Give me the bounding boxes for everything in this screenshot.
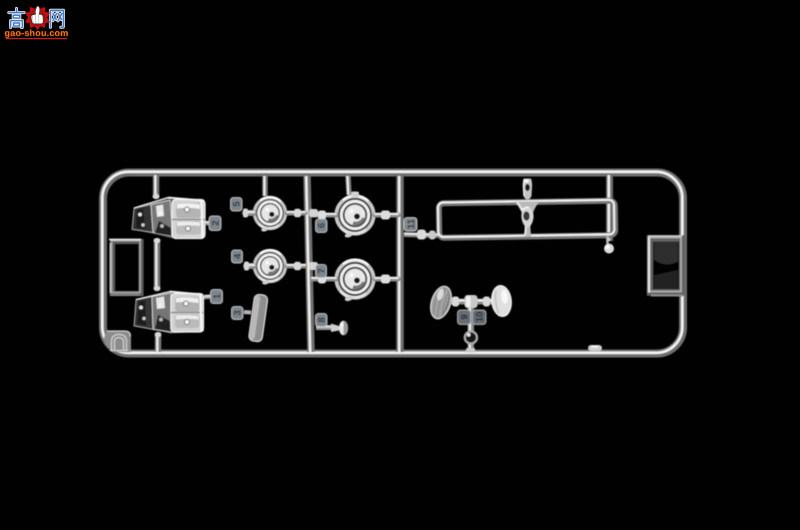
svg-text:6: 6 <box>317 223 328 228</box>
svg-text:9: 9 <box>459 314 470 319</box>
svg-text:3: 3 <box>232 310 243 315</box>
svg-text:8: 8 <box>317 317 328 322</box>
svg-text:2: 2 <box>210 220 221 225</box>
svg-text:1: 1 <box>212 293 223 299</box>
svg-text:gao-shou.com: gao-shou.com <box>5 28 69 38</box>
svg-text:7: 7 <box>316 268 327 273</box>
svg-text:11: 11 <box>406 218 417 229</box>
svg-text:10: 10 <box>475 312 486 323</box>
svg-text:4: 4 <box>232 253 243 259</box>
svg-text:5: 5 <box>232 201 243 207</box>
